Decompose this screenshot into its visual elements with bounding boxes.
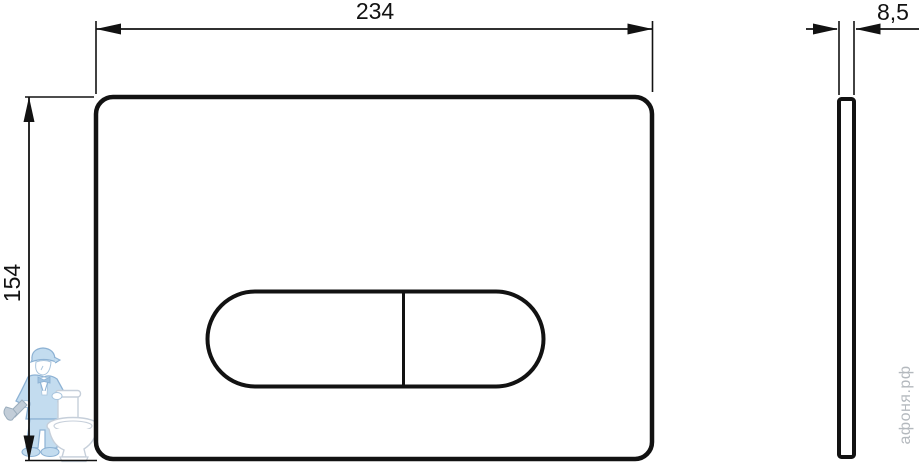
flush-plate-side-view [839,99,854,457]
flush-plate-front-view [96,97,652,459]
flush-button-oval [208,292,544,387]
width-dimension-label: 234 [340,0,410,23]
width-dimension [96,21,653,94]
width-arrowhead-right [628,24,653,35]
height-dimension-label: 154 [1,248,24,318]
thickness-arrowhead-left [813,24,838,35]
height-arrowhead-top [24,97,35,122]
thickness-dimension-label: 8,5 [877,1,919,24]
thickness-arrowhead-right [856,24,881,35]
width-arrowhead-left [96,24,121,35]
technical-drawing-canvas: 234 154 8,5 афоня.рф [0,0,920,464]
side-view [839,99,854,457]
drawing-svg [0,0,920,464]
thickness-dimension [806,21,919,95]
plumber-with-toilet-icon [4,348,99,462]
watermark-site-label: афоня.рф [897,347,914,463]
front-view [96,97,652,459]
